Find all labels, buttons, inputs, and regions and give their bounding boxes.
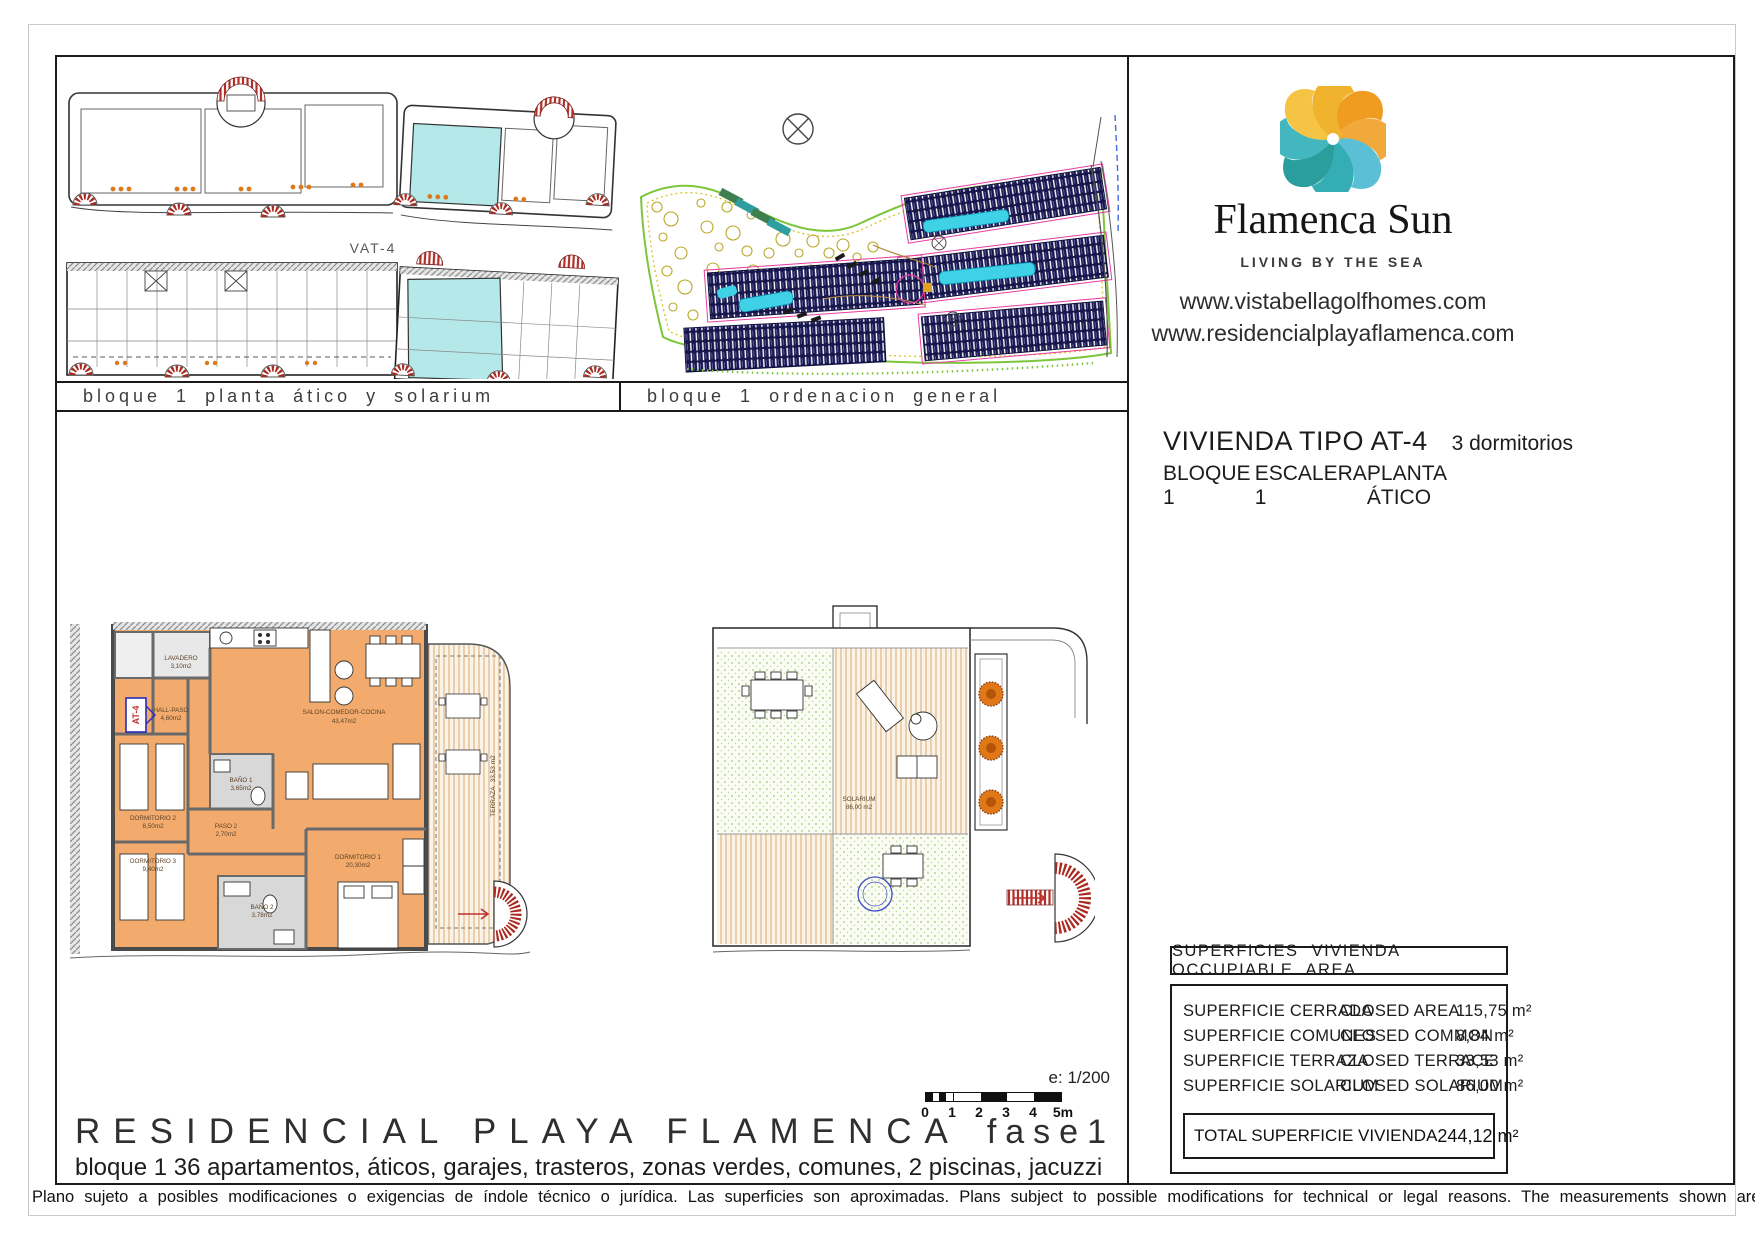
row-label-en: CLOSED SOLARIUM xyxy=(1340,1077,1456,1096)
areas-table-body: SUPERFICIE CERRADA CLOSED AREA 115,75 m²… xyxy=(1170,984,1508,1174)
row-value: 86,00 m² xyxy=(1456,1077,1524,1096)
total-row: TOTAL SUPERFICIE VIVIENDA 244,12 m² xyxy=(1183,1113,1495,1159)
panel-captions: bloque 1 planta ático y solarium bloque … xyxy=(57,381,1127,412)
total-label: TOTAL SUPERFICIE VIVIENDA xyxy=(1194,1126,1437,1146)
table-row: SUPERFICIE COMUNES CLOSED COMMON 8,84 m² xyxy=(1183,1024,1495,1049)
project-name: RESIDENCIAL PLAYA FLAMENCA xyxy=(75,1112,961,1152)
planter-strip xyxy=(975,654,1007,830)
solarium-level-right-building xyxy=(393,89,619,231)
unit-floor: PLANTA ÁTICO xyxy=(1367,462,1497,510)
row-label-es: SUPERFICIE CERRADA xyxy=(1183,1002,1340,1021)
terrain-line xyxy=(713,950,970,952)
total-value: 244,12 m² xyxy=(1437,1126,1518,1147)
unit-stair: ESCALERA 1 xyxy=(1255,462,1367,510)
table-row: SUPERFICIE SOLARIUM CLOSED SOLARIUM 86,0… xyxy=(1183,1074,1495,1099)
apartment-floorplan-drawing: TERRAZA33,53 m2 xyxy=(58,614,538,962)
unit-type-title: VIVIENDA TIPO AT-4 xyxy=(1163,426,1428,457)
phase-label: fase1 xyxy=(987,1113,1115,1152)
row-label-es: SUPERFICIE COMUNES xyxy=(1183,1027,1340,1046)
table-row: SUPERFICIE CERRADA CLOSED AREA 115,75 m² xyxy=(1183,999,1495,1024)
solarium-body: SOLARIUM86,00 m2 xyxy=(713,606,970,946)
hedge-row xyxy=(719,188,792,236)
solarium-spiral-staircase xyxy=(1007,854,1095,942)
highlighted-unit-atico xyxy=(403,273,508,379)
row-label-en: CLOSED TERRACE xyxy=(1340,1052,1456,1071)
caption-planta-atico: bloque 1 planta ático y solarium xyxy=(57,383,621,410)
scale-bar xyxy=(925,1092,1062,1102)
footer-title-row: RESIDENCIAL PLAYA FLAMENCA fase1 xyxy=(75,1112,1115,1152)
plot-boundary-hatch xyxy=(70,624,80,954)
row-value: 33,53 m² xyxy=(1456,1052,1524,1071)
row-label-en: CLOSED COMMON xyxy=(1340,1027,1456,1046)
apartment-body: LAVADERO3,10m2 HALL-PASO4,60m2 SALON-COM… xyxy=(113,622,426,949)
site-plan-drawing xyxy=(623,57,1125,379)
brand-tagline: LIVING BY THE SEA xyxy=(1128,254,1538,270)
atico-level-right-building xyxy=(391,246,619,379)
logo-petals xyxy=(1280,86,1386,192)
compass-icon xyxy=(783,114,813,144)
row-value: 8,84 m² xyxy=(1456,1027,1514,1046)
unit-block: BLOQUE 1 xyxy=(1163,462,1255,510)
table-row: SUPERFICIE TERRAZA CLOSED TERRACE 33,53 … xyxy=(1183,1049,1495,1074)
website-residencial: www.residencialplayaflamenca.com xyxy=(1128,320,1538,347)
areas-table-header: SUPERFICIES VIVIENDA OCCUPIABLE AREA xyxy=(1170,946,1508,975)
unit-bedrooms: 3 dormitorios xyxy=(1452,432,1573,456)
row-label-en: CLOSED AREA xyxy=(1340,1002,1456,1021)
scale-label: e: 1/200 xyxy=(1000,1068,1110,1088)
legal-disclaimer: Plano sujeto a posibles modificaciones o… xyxy=(32,1188,1732,1207)
solarium-zone-bl xyxy=(717,834,833,944)
areas-table: SUPERFICIES VIVIENDA OCCUPIABLE AREA SUP… xyxy=(1170,946,1508,1174)
dining-set xyxy=(366,636,420,686)
atico-level-left-building xyxy=(67,263,397,377)
unit-heading: VIVIENDA TIPO AT-4 3 dormitorios BLOQUE … xyxy=(1163,426,1497,510)
row-value: 115,75 m² xyxy=(1456,1002,1532,1021)
flamenca-sun-logo-icon xyxy=(1280,86,1386,192)
solarium-label: SOLARIUM86,00 m2 xyxy=(843,796,876,811)
block1-atico-solarium-drawing: VAT-4 xyxy=(57,57,621,379)
caption-ordenacion-general: bloque 1 ordenacion general xyxy=(621,383,1127,410)
brand-name: Flamenca Sun xyxy=(1128,196,1538,244)
room-label-bano1: BAÑO 13,65m2 xyxy=(229,775,253,792)
planter-trees xyxy=(979,682,1003,814)
solarium-level-left-building xyxy=(69,77,397,217)
solarium-plan-drawing: SOLARIUM86,00 m2 xyxy=(625,598,1095,963)
highlighted-unit-solarium xyxy=(410,123,502,205)
terrain-line xyxy=(70,952,530,958)
website-vistabella: www.vistabellagolfhomes.com xyxy=(1128,288,1538,315)
room-label-bano2: BAÑO 23,78m2 xyxy=(250,902,274,919)
project-description: bloque 1 36 apartamentos, áticos, garaje… xyxy=(75,1154,1125,1182)
vat4-label: VAT-4 xyxy=(350,240,397,256)
room-label-paso2: PASO 22,70m2 xyxy=(215,823,238,838)
plan-sheet: VAT-4 xyxy=(0,0,1755,1240)
svg-text:AT-4: AT-4 xyxy=(131,706,141,725)
row-label-es: SUPERFICIE SOLARIUM xyxy=(1183,1077,1340,1096)
row-label-es: SUPERFICIE TERRAZA xyxy=(1183,1052,1340,1071)
